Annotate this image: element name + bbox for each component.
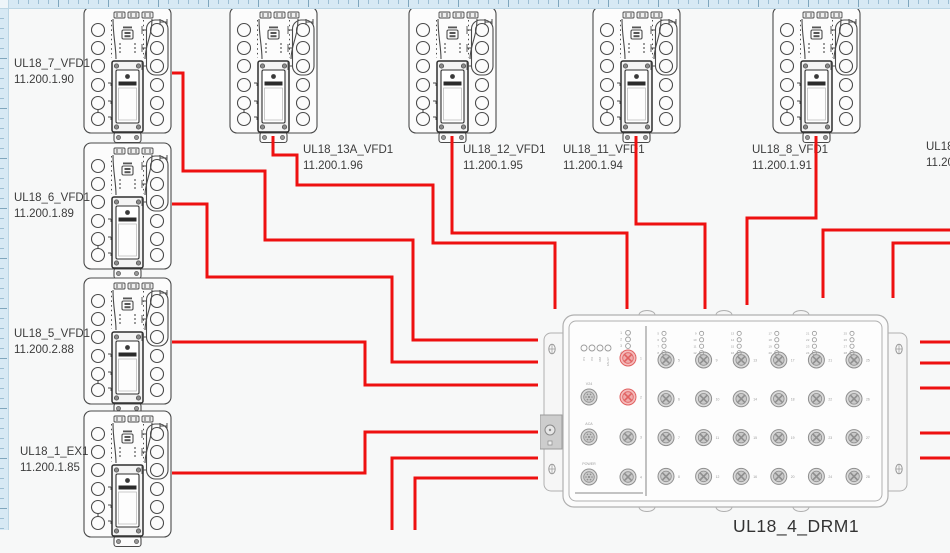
svg-text:6: 6 xyxy=(678,397,680,401)
device-label-UL18_13A_VFD1: UL18_13A_VFD111.200.1.96 xyxy=(303,143,393,174)
svg-text:26: 26 xyxy=(844,338,848,342)
device-ip: 11.200.1.89 xyxy=(14,207,90,223)
device-name: UL18_7_VFD1 xyxy=(14,58,90,70)
svg-text:13: 13 xyxy=(731,332,735,336)
diagram-canvas: { "app": { "canvas_bg": "#f7f8f8", "rule… xyxy=(0,0,950,530)
svg-text:1: 1 xyxy=(640,357,642,361)
svg-text:11: 11 xyxy=(693,344,696,348)
ruler-corner xyxy=(0,0,9,9)
svg-text:17: 17 xyxy=(768,332,772,336)
device-ip: 11.200.1.94 xyxy=(563,159,645,175)
svg-text:19: 19 xyxy=(768,344,772,348)
device-UL18_6_VFD1[interactable] xyxy=(83,142,172,280)
svg-text:ACA: ACA xyxy=(585,422,593,426)
svg-text:22: 22 xyxy=(806,338,810,342)
device-ip: 11.20 xyxy=(926,156,950,172)
svg-text:26: 26 xyxy=(866,397,870,401)
svg-text:18: 18 xyxy=(791,397,795,401)
device-label-UL18_11_VFD1: UL18_11_VFD111.200.1.94 xyxy=(563,143,645,174)
device-UL18_7_VFD1[interactable] xyxy=(83,6,172,144)
device-label-UL18_5_VFD1: UL18_5_VFD111.200.2.88 xyxy=(14,327,90,358)
svg-text:27: 27 xyxy=(844,344,848,348)
svg-text:15: 15 xyxy=(731,344,735,348)
device-name: UL18_12_VFD1 xyxy=(463,144,545,156)
device-label-UL18_12_VFD1: UL18_12_VFD111.200.1.95 xyxy=(463,143,545,174)
svg-text:3: 3 xyxy=(620,344,622,348)
svg-text:4: 4 xyxy=(640,476,642,480)
svg-text:16: 16 xyxy=(753,475,757,479)
device-ip: 11.200.1.96 xyxy=(303,159,393,175)
svg-text:21: 21 xyxy=(806,332,810,336)
svg-text:28: 28 xyxy=(844,351,848,355)
svg-text:20: 20 xyxy=(791,475,795,479)
svg-text:21: 21 xyxy=(828,359,832,363)
drm-title: UL18_4_DRM1 xyxy=(733,516,859,537)
device-label-UL18_7_VFD1: UL18_7_VFD111.200.1.90 xyxy=(14,57,90,88)
svg-text:23: 23 xyxy=(828,436,832,440)
svg-text:9: 9 xyxy=(716,359,718,363)
svg-text:13: 13 xyxy=(753,359,757,363)
device-UL18_11_VFD1[interactable] xyxy=(592,6,681,144)
cable-ul18-11[interactable] xyxy=(636,136,705,309)
svg-text:22: 22 xyxy=(828,397,832,401)
svg-text:12: 12 xyxy=(693,351,697,355)
svg-text:16: 16 xyxy=(731,351,735,355)
device-UL18_1_EX1[interactable] xyxy=(83,410,172,548)
svg-text:24: 24 xyxy=(828,475,832,479)
device-UL18_5_VFD1[interactable] xyxy=(83,277,172,415)
svg-text:25: 25 xyxy=(844,332,848,336)
cable-right-1[interactable] xyxy=(823,230,950,298)
device-label-partial-right: UL18 11.20 xyxy=(926,140,950,171)
svg-text:8: 8 xyxy=(678,475,680,479)
svg-text:11: 11 xyxy=(716,436,720,440)
svg-text:27: 27 xyxy=(866,436,870,440)
svg-text:P2: P2 xyxy=(590,357,594,361)
svg-text:5: 5 xyxy=(678,359,680,363)
svg-text:POWER: POWER xyxy=(582,462,596,466)
device-UL18_8_VFD1[interactable] xyxy=(772,6,861,144)
svg-text:19: 19 xyxy=(791,436,795,440)
device-name: UL18_13A_VFD1 xyxy=(303,144,393,156)
device-ip: 11.200.2.88 xyxy=(14,343,90,359)
svg-text:FAULT: FAULT xyxy=(606,357,610,366)
svg-text:12: 12 xyxy=(716,475,720,479)
svg-text:28: 28 xyxy=(866,475,870,479)
svg-text:7: 7 xyxy=(678,436,680,440)
svg-text:2: 2 xyxy=(640,396,642,400)
svg-text:3: 3 xyxy=(640,436,642,440)
svg-text:14: 14 xyxy=(731,338,735,342)
device-name: UL18_6_VFD1 xyxy=(14,192,90,204)
cable-bottom-2[interactable] xyxy=(415,478,538,530)
svg-text:18: 18 xyxy=(768,338,772,342)
svg-text:1: 1 xyxy=(620,331,622,335)
svg-text:V24: V24 xyxy=(586,382,592,386)
device-ip: 11.200.1.95 xyxy=(463,159,545,175)
device-ip: 11.200.1.85 xyxy=(20,461,88,477)
device-ip: 11.200.1.90 xyxy=(14,73,90,89)
svg-text:P1: P1 xyxy=(582,357,586,361)
device-name: UL18_11_VFD1 xyxy=(563,144,645,156)
svg-text:24: 24 xyxy=(806,351,810,355)
svg-text:20: 20 xyxy=(768,351,772,355)
svg-text:10: 10 xyxy=(716,397,720,401)
cable-ul18-1[interactable] xyxy=(172,432,538,473)
device-ul18-4-drm1[interactable]: P1P2RMFAULT1234V24ACAPOWER12345566778899… xyxy=(540,303,950,530)
svg-text:10: 10 xyxy=(693,338,697,342)
svg-text:17: 17 xyxy=(791,359,795,363)
device-name: UL18_5_VFD1 xyxy=(14,328,90,340)
svg-text:23: 23 xyxy=(806,344,810,348)
ruler-horizontal xyxy=(0,0,950,9)
cable-right-2[interactable] xyxy=(893,243,950,298)
device-UL18_12_VFD1[interactable] xyxy=(408,6,497,144)
device-label-UL18_6_VFD1: UL18_6_VFD111.200.1.89 xyxy=(14,191,90,222)
svg-text:RM: RM xyxy=(598,357,602,362)
device-name: UL18 xyxy=(926,141,950,153)
device-name: UL18_1_EX1 xyxy=(20,446,88,458)
device-UL18_13A_VFD1[interactable] xyxy=(229,6,318,144)
svg-text:14: 14 xyxy=(753,397,757,401)
ruler-vertical xyxy=(0,0,9,530)
svg-text:15: 15 xyxy=(753,436,757,440)
cable-ul18-6[interactable] xyxy=(172,204,538,362)
device-label-UL18_1_EX1: UL18_1_EX111.200.1.85 xyxy=(20,445,88,476)
svg-text:2: 2 xyxy=(620,338,622,342)
svg-text:25: 25 xyxy=(866,359,870,363)
